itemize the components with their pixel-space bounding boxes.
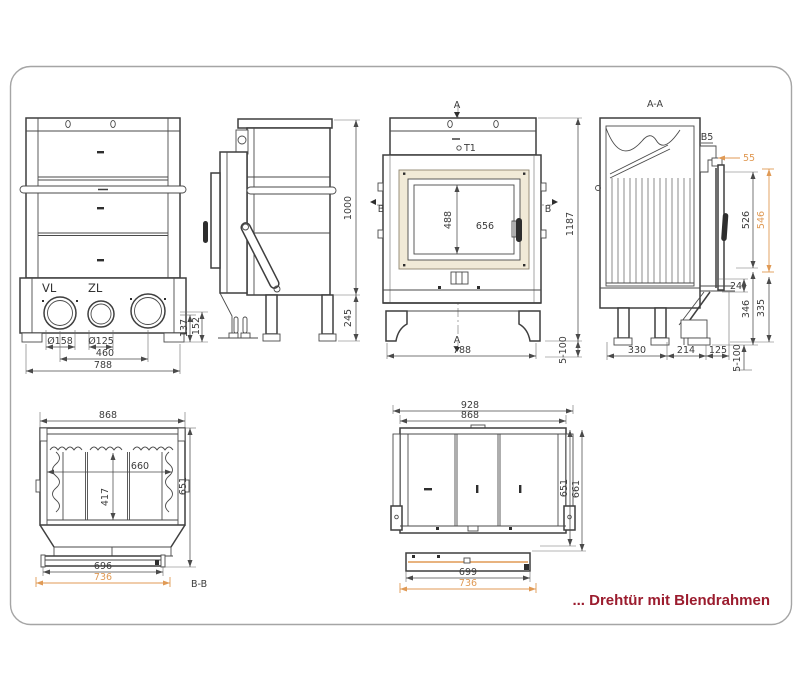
side-dim-245: 245 bbox=[343, 309, 354, 327]
bb-dim-868: 868 bbox=[99, 410, 117, 421]
rear-label-zl: ZL bbox=[88, 281, 103, 295]
section-aa-mark-b5: B5 bbox=[701, 132, 714, 143]
front-mark-b-right: B bbox=[545, 204, 552, 215]
rear-dim-137: 137 bbox=[179, 319, 190, 337]
rear-dim-788: 788 bbox=[94, 360, 112, 371]
caption: ... Drehtür mit Blendrahmen bbox=[572, 592, 770, 609]
aa-dim-55: 55 bbox=[743, 153, 755, 164]
front-mark-t1: T1 bbox=[463, 143, 476, 154]
aa-dim-125: 125 bbox=[709, 345, 727, 356]
plan-dim-661: 661 bbox=[571, 480, 582, 498]
rear-dim-152: 152 bbox=[191, 317, 202, 335]
plan-dim-868: 868 bbox=[461, 410, 479, 421]
front-dim-5-100: 5-100 bbox=[558, 336, 569, 364]
bb-dim-651: 651 bbox=[178, 477, 189, 495]
side-door-handle bbox=[203, 221, 208, 243]
technical-drawing: VL ZL Ø158 Ø125 460 788 137 152 bbox=[0, 0, 800, 700]
aa-dim-546: 546 bbox=[756, 211, 767, 229]
front-section-mark-a-top: A bbox=[454, 100, 461, 111]
aa-dim-346: 346 bbox=[741, 300, 752, 318]
aa-dim-335: 335 bbox=[756, 299, 767, 317]
bb-dim-736: 736 bbox=[94, 572, 112, 583]
bb-dim-696: 696 bbox=[94, 561, 112, 572]
aa-dim-214: 214 bbox=[677, 345, 695, 356]
rear-dim-460: 460 bbox=[96, 348, 114, 359]
section-aa-title: A-A bbox=[647, 99, 664, 110]
bb-dim-660: 660 bbox=[131, 461, 149, 472]
front-dim-656: 656 bbox=[476, 221, 494, 232]
aa-dim-24: 24 bbox=[730, 281, 742, 292]
front-mark-b-left: B bbox=[378, 204, 385, 215]
plan-dim-736: 736 bbox=[459, 578, 477, 589]
front-dim-788: 788 bbox=[453, 345, 471, 356]
plan-dim-699: 699 bbox=[459, 567, 477, 578]
front-door-handle bbox=[516, 218, 522, 242]
plan-dim-651: 651 bbox=[559, 479, 570, 497]
drawing-sheet: VL ZL Ø158 Ø125 460 788 137 152 bbox=[0, 0, 800, 700]
front-dim-1187: 1187 bbox=[565, 212, 576, 236]
front-dim-488: 488 bbox=[443, 211, 454, 229]
section-bb-title: B-B bbox=[191, 579, 207, 590]
bb-dim-417: 417 bbox=[100, 488, 111, 506]
aa-dim-5-100: 5-100 bbox=[732, 344, 743, 372]
rear-label-vl: VL bbox=[42, 281, 57, 295]
side-dim-1000: 1000 bbox=[343, 196, 354, 220]
rear-dim-125: Ø125 bbox=[88, 336, 114, 347]
aa-dim-330: 330 bbox=[628, 345, 646, 356]
aa-dim-526: 526 bbox=[741, 211, 752, 229]
